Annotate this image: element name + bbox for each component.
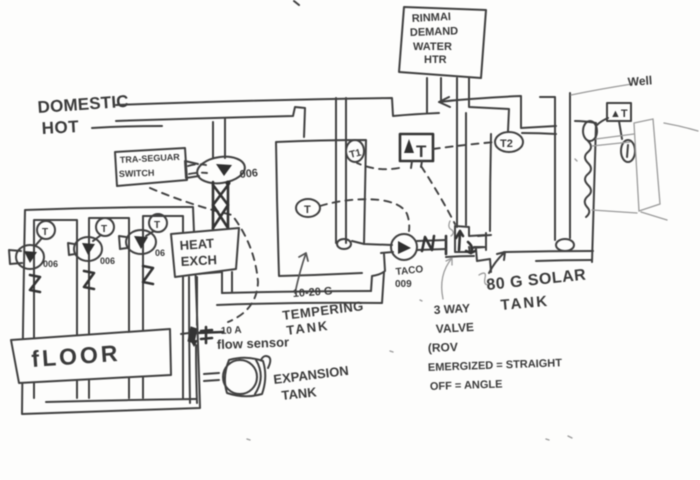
svg-text:T: T bbox=[42, 227, 48, 238]
svg-text:T2: T2 bbox=[500, 138, 513, 150]
svg-text:HEAT: HEAT bbox=[179, 236, 214, 253]
svg-text:VALVE: VALVE bbox=[435, 320, 474, 336]
svg-text:06: 06 bbox=[155, 248, 165, 258]
svg-text:006: 006 bbox=[43, 259, 58, 269]
svg-text:3 WAY: 3 WAY bbox=[433, 301, 470, 317]
svg-text:006: 006 bbox=[100, 256, 115, 266]
svg-text:DEMAND: DEMAND bbox=[410, 25, 459, 39]
svg-text:006: 006 bbox=[239, 167, 259, 181]
svg-text:RINMAI: RINMAI bbox=[412, 11, 452, 25]
svg-text:10 A: 10 A bbox=[221, 325, 242, 337]
svg-text:(ROV: (ROV bbox=[428, 340, 458, 355]
svg-text:WATER: WATER bbox=[413, 41, 452, 53]
svg-text:T: T bbox=[154, 220, 160, 231]
svg-text:T: T bbox=[416, 142, 427, 161]
svg-text:SWITCH: SWITCH bbox=[119, 168, 155, 179]
svg-text:009: 009 bbox=[395, 279, 412, 290]
svg-text:Well: Well bbox=[627, 73, 652, 89]
svg-text:▲T: ▲T bbox=[610, 108, 628, 120]
svg-text:flow sensor: flow sensor bbox=[217, 334, 290, 352]
svg-text:T: T bbox=[101, 224, 107, 235]
svg-text:HTR: HTR bbox=[424, 54, 447, 66]
svg-text:OFF = ANGLE: OFF = ANGLE bbox=[430, 378, 503, 393]
svg-text:EXCH: EXCH bbox=[180, 252, 217, 269]
svg-text:HOT: HOT bbox=[41, 117, 79, 138]
svg-text:T: T bbox=[304, 204, 311, 216]
